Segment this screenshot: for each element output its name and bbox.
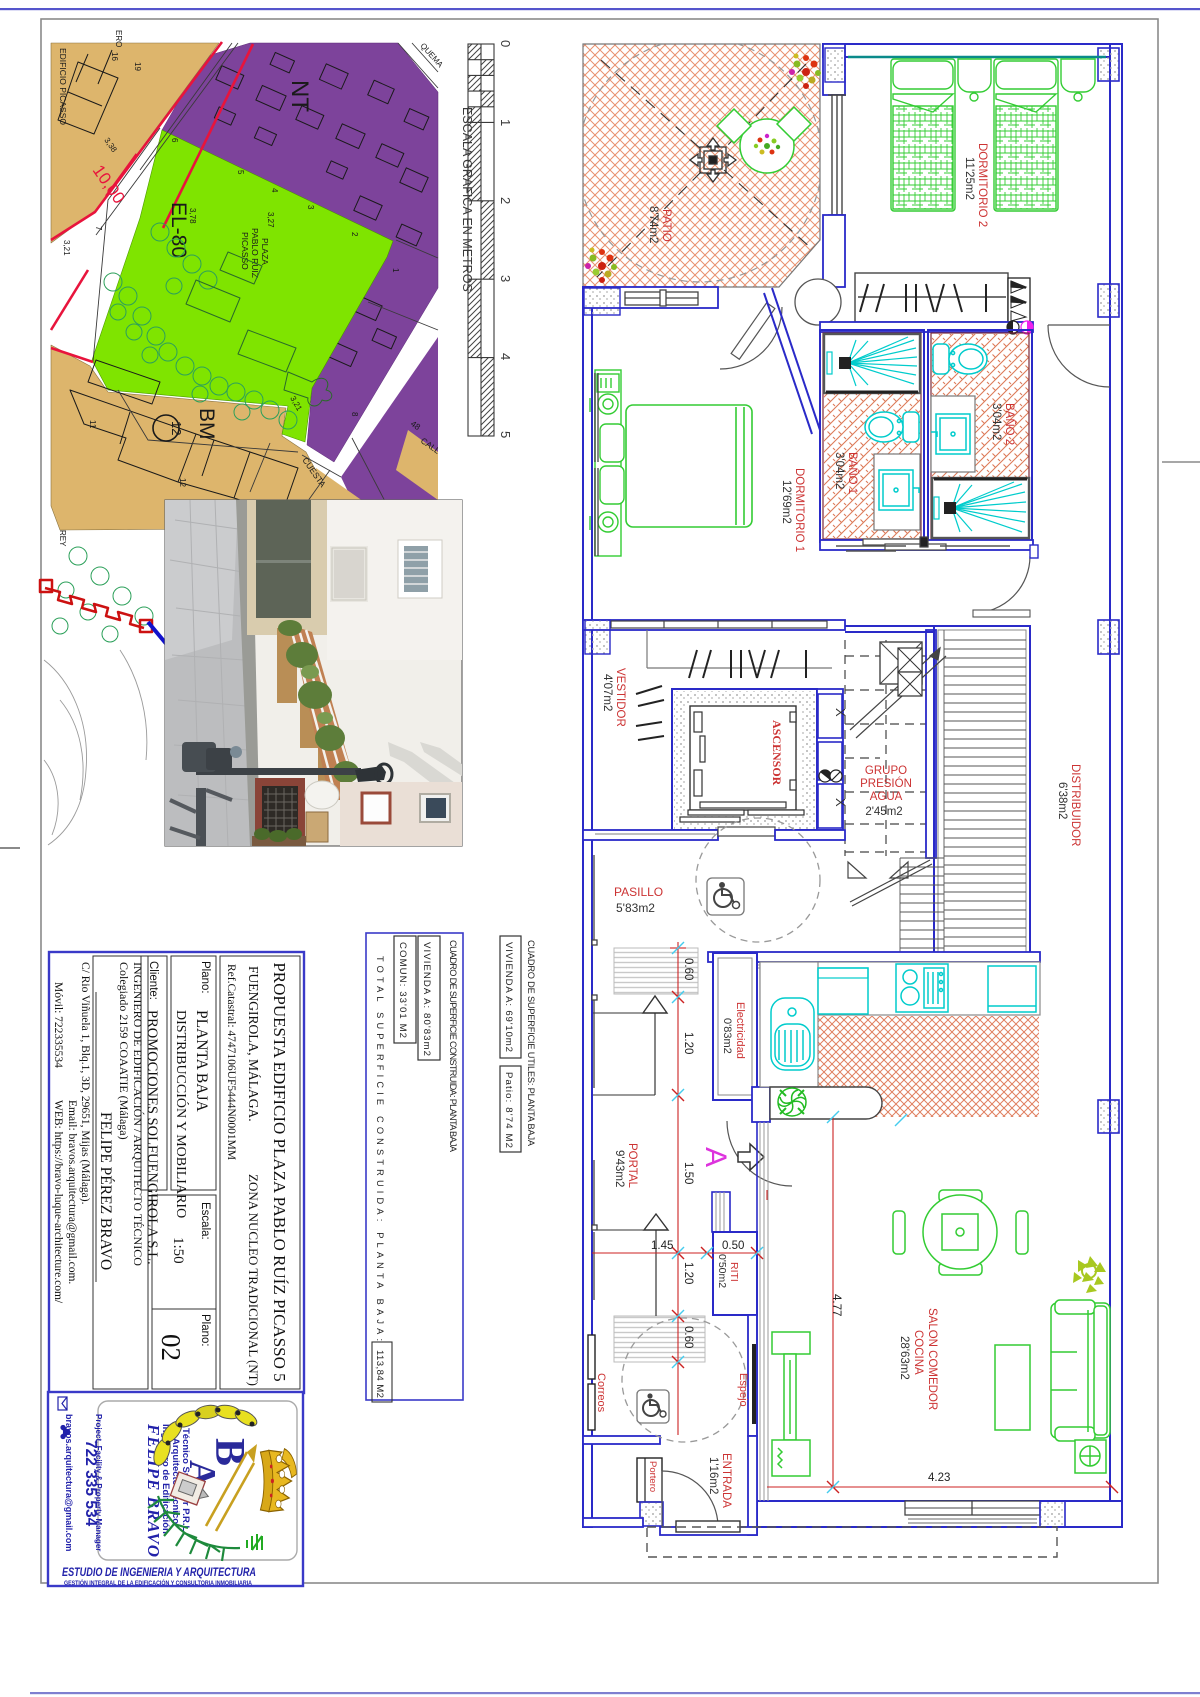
svg-text:EL-80: EL-80 — [167, 202, 190, 258]
svg-text:GRUPO: GRUPO — [865, 765, 907, 777]
svg-text:12: 12 — [178, 478, 187, 487]
svg-text:0.50: 0.50 — [722, 1240, 744, 1252]
svg-text:Cliente:: Cliente: — [147, 961, 159, 1000]
svg-text:Escala:: Escala: — [199, 1202, 211, 1240]
svg-text:X: X — [833, 708, 848, 717]
svg-text:3'04m2: 3'04m2 — [833, 452, 845, 489]
svg-text:CUADRO DE SUPERFICIE CONSTRUID: CUADRO DE SUPERFICIE CONSTRUIDA: PLANTA … — [448, 940, 458, 1153]
svg-text:PATIO: PATIO — [660, 209, 672, 242]
svg-text:NT: NT — [286, 80, 313, 112]
svg-text:PROPUESTA EDIFICIO PLAZA PABLO: PROPUESTA EDIFICIO PLAZA PABLO RUÍZ PICA… — [270, 962, 289, 1381]
svg-text:TOTAL SUPERFICIE CONSTRUIDA:: TOTAL SUPERFICIE CONSTRUIDA: PLANTA BAJA… — [375, 956, 385, 1341]
svg-text:BAÑO 2: BAÑO 2 — [1003, 403, 1016, 445]
svg-text:8: 8 — [350, 412, 359, 417]
svg-text:3,27: 3,27 — [266, 212, 275, 228]
svg-text:1.50: 1.50 — [682, 1162, 694, 1184]
svg-text:REY: REY — [58, 530, 67, 547]
svg-text:WEB: https://bravo-luque-arch: WEB: https://bravo-luque-architecture.co… — [52, 1100, 64, 1304]
svg-text:3,21: 3,21 — [62, 240, 71, 256]
svg-text:ESCALA GRAFICA EN METROS: ESCALA GRAFICA EN METROS — [460, 107, 474, 292]
svg-text:VIVIENDA A: 80'83m2: VIVIENDA A: 80'83m2 — [421, 942, 432, 1056]
svg-text:A: A — [699, 1147, 732, 1167]
svg-text:4'07m2: 4'07m2 — [601, 674, 613, 711]
svg-text:Electricidad: Electricidad — [734, 1002, 746, 1059]
svg-text:Espejo: Espejo — [737, 1373, 749, 1407]
svg-text:Móvil: 722335534: Móvil: 722335534 — [52, 982, 64, 1068]
svg-text:FELIPE PÉREZ BRAVO: FELIPE PÉREZ BRAVO — [97, 1112, 114, 1270]
svg-text:DISTRIBUCCIÓN Y MOBILIARIO: DISTRIBUCCIÓN Y MOBILIARIO — [173, 1010, 190, 1218]
svg-text:11'25m2: 11'25m2 — [963, 157, 975, 200]
svg-text:6'38m2: 6'38m2 — [1056, 782, 1068, 819]
svg-text:1.20: 1.20 — [682, 1262, 694, 1284]
svg-text:113,84 M2: 113,84 M2 — [374, 1350, 385, 1398]
svg-text:COCINA: COCINA — [912, 1330, 924, 1375]
svg-text:CUADRO DE SUPERFICIE UTILES:: CUADRO DE SUPERFICIE UTILES: PLANTA BAJA — [526, 940, 536, 1147]
svg-text:2: 2 — [498, 197, 513, 204]
svg-text:1.45: 1.45 — [651, 1240, 673, 1252]
svg-text:C/ Rio Viñuela 1, Blq.1, 3D, 2: C/ Rio Viñuela 1, Blq.1, 3D, 29651, Mija… — [79, 962, 91, 1205]
svg-text:PLANTA BAJA: PLANTA BAJA — [193, 1010, 210, 1112]
svg-text:GESTIÓN INTEGRAL DE LA EDIFICA: GESTIÓN INTEGRAL DE LA EDIFICACIÓN Y CON… — [64, 1578, 252, 1587]
svg-text:0'50m2: 0'50m2 — [716, 1254, 728, 1288]
svg-text:RITI: RITI — [728, 1262, 740, 1282]
svg-text:02: 02 — [156, 1334, 186, 1361]
svg-text:5: 5 — [236, 170, 245, 175]
svg-text:1.20: 1.20 — [682, 1032, 694, 1054]
svg-text:Patio: 8'74 M2: Patio: 8'74 M2 — [503, 1072, 514, 1148]
svg-text:COMUN: 33'01 M2: COMUN: 33'01 M2 — [397, 942, 408, 1038]
svg-text:BM: BM — [195, 408, 218, 440]
svg-text:4: 4 — [270, 188, 279, 193]
svg-text:BAÑO 1: BAÑO 1 — [846, 452, 859, 494]
svg-text:1: 1 — [498, 119, 513, 126]
svg-text:4: 4 — [498, 353, 513, 360]
svg-text:5'83m2: 5'83m2 — [616, 901, 655, 915]
svg-text:722 335 534: 722 335 534 — [82, 1440, 99, 1527]
svg-text:Plano:: Plano: — [199, 961, 211, 994]
svg-text:VIVIENDA A: 69'10m2: VIVIENDA A: 69'10m2 — [503, 942, 514, 1052]
svg-text:EDIFICIO PICASSO: EDIFICIO PICASSO — [58, 48, 68, 125]
svg-text:9'43m2: 9'43m2 — [613, 1150, 625, 1187]
svg-text:ENTRADA: ENTRADA — [720, 1453, 732, 1508]
svg-text:3,78: 3,78 — [188, 208, 197, 224]
svg-text:5: 5 — [498, 431, 513, 438]
svg-text:11: 11 — [88, 420, 97, 429]
svg-text:ASCENSOR: ASCENSOR — [770, 720, 784, 786]
svg-text:0: 0 — [498, 40, 513, 47]
svg-text:8'74m2: 8'74m2 — [647, 206, 659, 243]
svg-text:PABLO RUIZ: PABLO RUIZ — [250, 228, 260, 278]
svg-text:Correos: Correos — [595, 1373, 607, 1413]
svg-text:PICASSO: PICASSO — [240, 232, 250, 270]
svg-text:Colegiado 2159 COAATIE (Málaga: Colegiado 2159 COAATIE (Málaga) — [117, 962, 131, 1140]
svg-text:Email: bravos.arquitectura@gm: Email: bravos.arquitectura@gmail.com. — [66, 1100, 78, 1284]
svg-text:1'16m2: 1'16m2 — [707, 1457, 719, 1494]
svg-text:1:50: 1:50 — [170, 1237, 186, 1264]
svg-text:INGENIERO DE EDIFICACIÓN / ARQ: INGENIERO DE EDIFICACIÓN / ARQUITECTO TÉ… — [131, 962, 145, 1266]
svg-text:2'45m2: 2'45m2 — [865, 806, 902, 818]
svg-text:bravos.arquitectura@gmail.com: bravos.arquitectura@gmail.com — [64, 1414, 74, 1551]
svg-text:PASILLO: PASILLO — [614, 885, 663, 899]
svg-text:4.77: 4.77 — [830, 1294, 842, 1316]
svg-text:DORMITORIO 1: DORMITORIO 1 — [793, 468, 805, 552]
svg-text:PROMOCIONES SOLFUENGIROLA S.L.: PROMOCIONES SOLFUENGIROLA S.L. — [144, 1010, 160, 1265]
svg-text:AGUA: AGUA — [870, 791, 903, 803]
svg-text:FUENGIROLA, MÁLAGA.: FUENGIROLA, MÁLAGA. — [246, 966, 261, 1122]
svg-text:1: 1 — [391, 268, 400, 273]
svg-text:0'83m2: 0'83m2 — [721, 1018, 733, 1054]
svg-text:ERO: ERO — [114, 30, 123, 47]
svg-text:Ref.Catastral: 4747106UF5444N0: Ref.Catastral: 4747106UF5444N0001MM — [225, 964, 237, 1160]
svg-text:DORMITORIO 2: DORMITORIO 2 — [976, 143, 988, 227]
svg-text:VESTIDOR: VESTIDOR — [614, 668, 626, 727]
svg-text:2: 2 — [350, 232, 359, 237]
svg-text:DISTRIBUIDOR: DISTRIBUIDOR — [1069, 764, 1081, 846]
svg-text:0.60: 0.60 — [682, 1326, 694, 1348]
svg-text:12: 12 — [169, 421, 184, 435]
svg-text:Portero: Portero — [647, 1461, 658, 1492]
svg-text:PORTAL: PORTAL — [626, 1143, 638, 1189]
svg-text:PRESIÓN: PRESIÓN — [860, 777, 912, 790]
svg-text:Plano:: Plano: — [199, 1314, 211, 1347]
svg-text:12'69m2: 12'69m2 — [780, 480, 792, 524]
svg-text:3'04m2: 3'04m2 — [990, 403, 1002, 440]
svg-text:0.60: 0.60 — [682, 958, 694, 980]
svg-text:3: 3 — [498, 275, 513, 282]
svg-text:SALON COMEDOR: SALON COMEDOR — [926, 1308, 938, 1410]
svg-text:7: 7 — [94, 226, 103, 231]
svg-text:16: 16 — [110, 52, 119, 61]
svg-text:ZONA NUCLEO TRADICIONAL (NT): ZONA NUCLEO TRADICIONAL (NT) — [246, 1174, 261, 1386]
svg-text:PLAZA: PLAZA — [260, 238, 270, 265]
svg-text:19: 19 — [133, 62, 142, 71]
svg-text:ESTUDIO DE INGENIERIA Y ARQUIT: ESTUDIO DE INGENIERIA Y ARQUITECTURA — [62, 1565, 256, 1579]
svg-text:28'63m2: 28'63m2 — [898, 1336, 910, 1380]
svg-text:4.23: 4.23 — [928, 1472, 950, 1484]
svg-text:6: 6 — [170, 138, 179, 143]
svg-text:3: 3 — [306, 205, 315, 210]
svg-text:X: X — [833, 798, 848, 807]
